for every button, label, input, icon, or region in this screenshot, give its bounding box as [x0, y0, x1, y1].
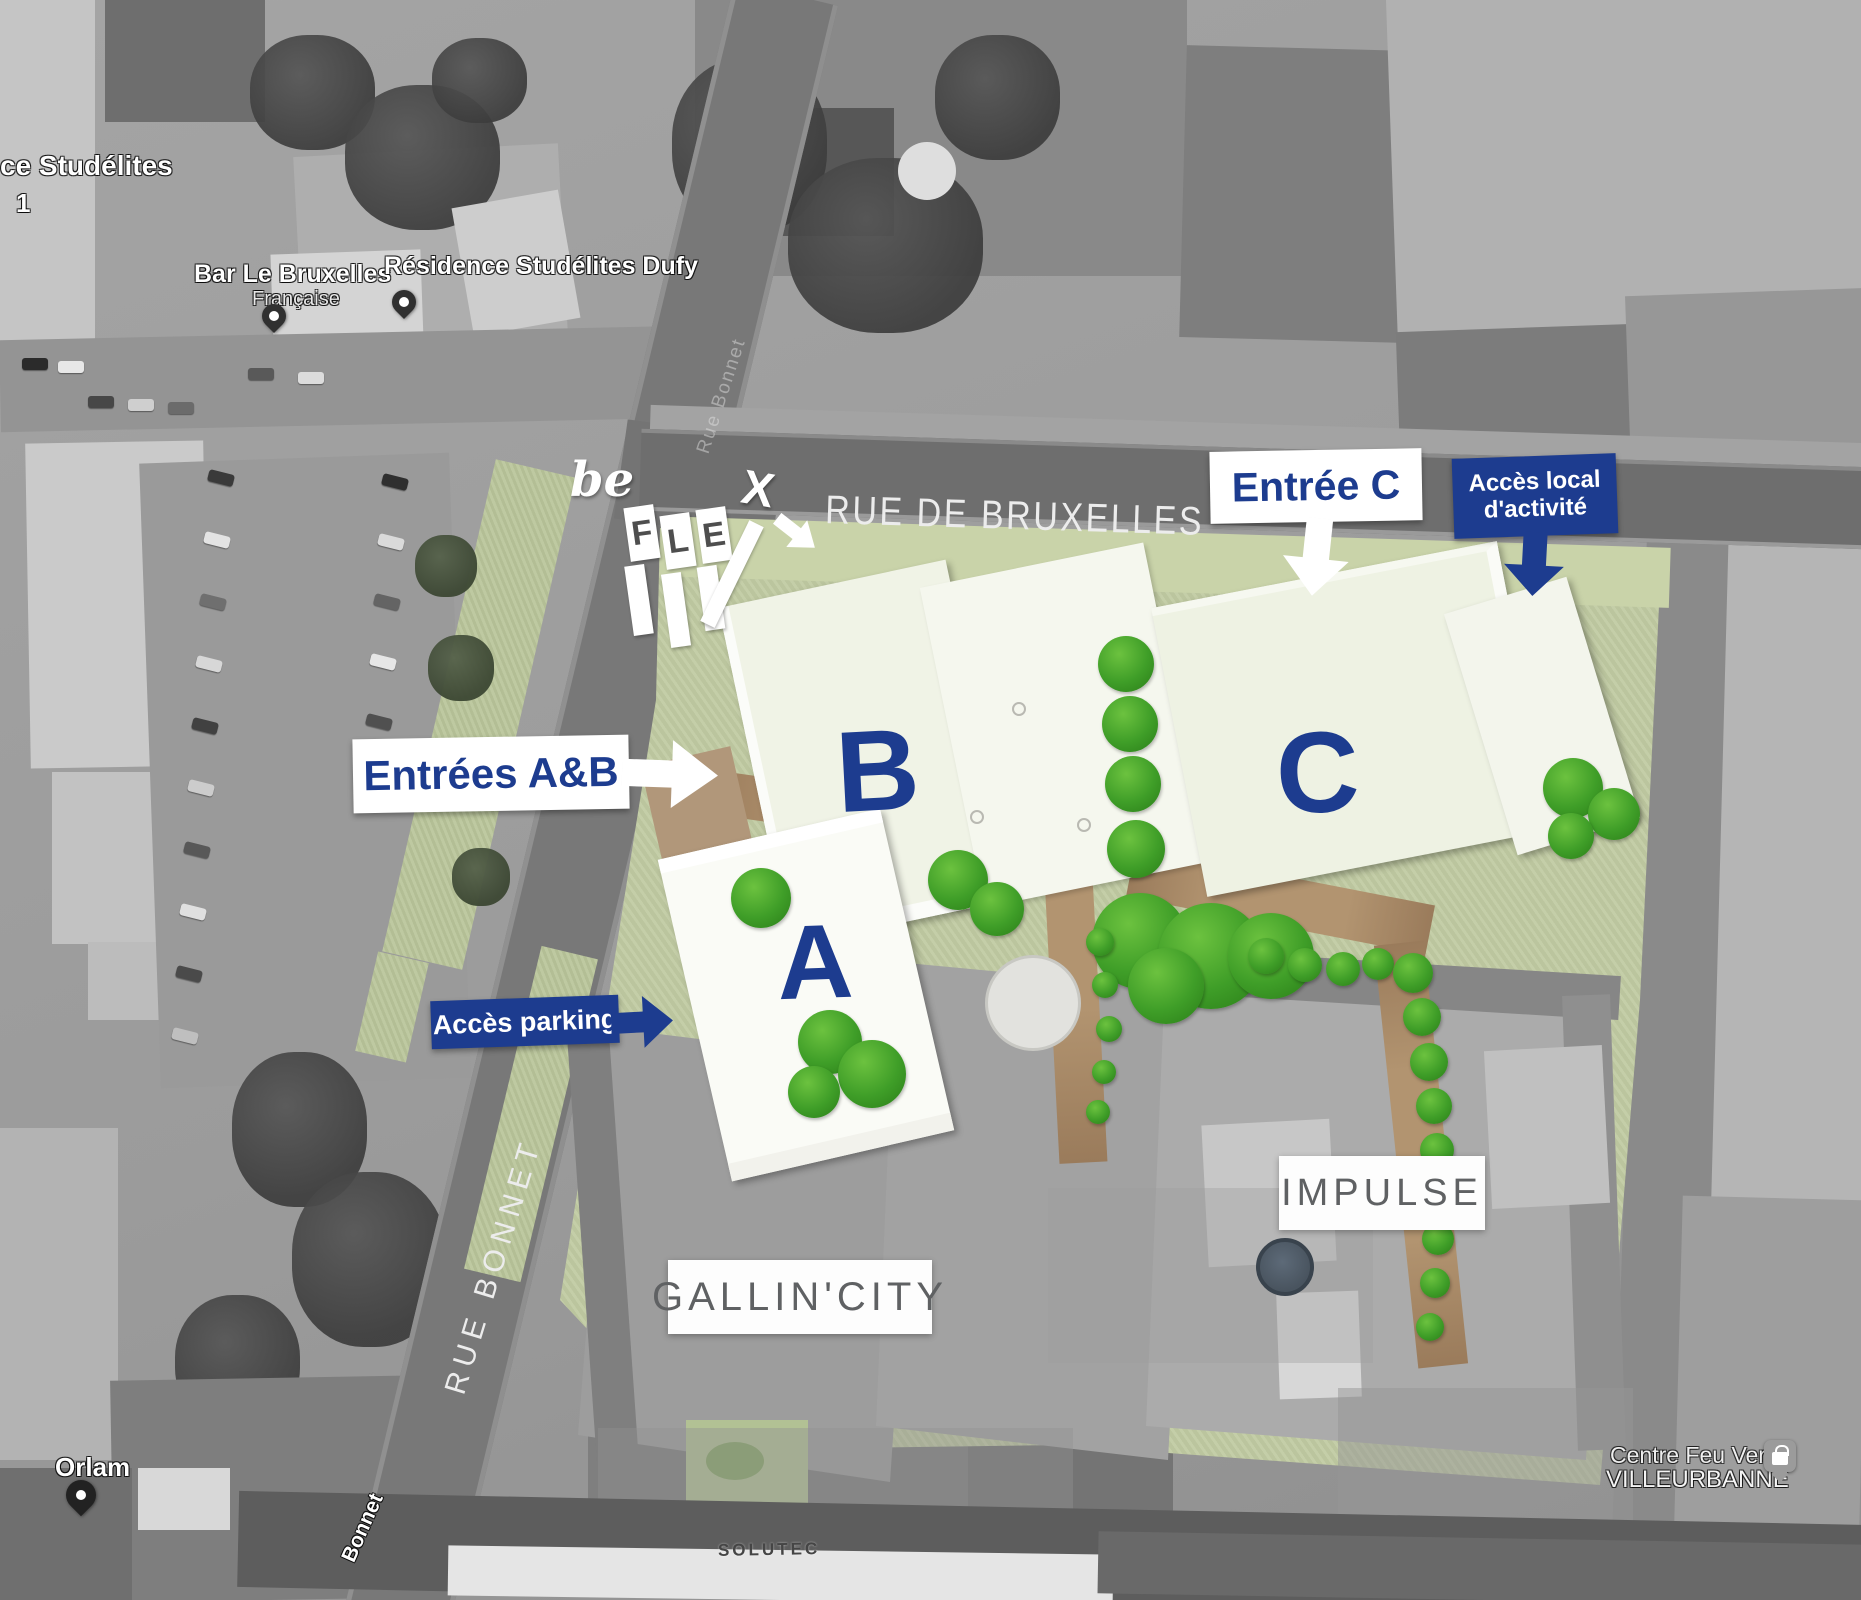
poi-orlam-label: Orlam — [55, 1452, 130, 1483]
poi-solutec-label: SOLUTEC — [718, 1539, 821, 1561]
aerial-car — [128, 399, 154, 411]
plan-plaza-circle — [985, 955, 1081, 1051]
plan-bush — [970, 882, 1024, 936]
aerial-building — [105, 0, 265, 122]
gallin-city-label: GALLIN'CITY — [652, 1275, 948, 1320]
aerial-car — [88, 396, 114, 408]
building-c-label: C — [1274, 715, 1361, 833]
plan-bush — [1588, 788, 1640, 840]
callout-acces-parking-label: Accès parking — [432, 1003, 618, 1040]
callout-acces-local-line2: d'activité — [1483, 494, 1587, 524]
poi-studelites-number: 1 — [16, 188, 30, 219]
plan-bush — [1416, 1088, 1452, 1124]
building-a-label: A — [775, 909, 854, 1017]
plan-hedge-tree — [415, 535, 477, 597]
logo-be: be — [570, 452, 634, 508]
poi-feuvert-label: Centre Feu Vert — [1610, 1442, 1772, 1469]
plan-marker-ring — [1012, 702, 1026, 716]
pin-dot-icon — [74, 1488, 88, 1502]
plan-bush — [838, 1040, 906, 1108]
aerial-building — [1673, 1196, 1861, 1566]
plan-tree-cluster — [1128, 948, 1204, 1024]
plan-bush — [788, 1066, 840, 1118]
aerial-car — [22, 358, 48, 370]
callout-acces-local: Accès local d'activité — [1452, 453, 1619, 539]
aerial-building — [138, 1468, 230, 1530]
plan-bush — [1420, 1268, 1450, 1298]
aerial-car — [58, 361, 84, 373]
aerial-car — [298, 372, 324, 384]
plan-marker-ring — [1077, 818, 1091, 832]
plan-bush — [1393, 953, 1433, 993]
aerial-building — [1179, 45, 1411, 343]
plan-bush — [1288, 948, 1322, 982]
plan-bush — [1102, 696, 1158, 752]
plan-marker-ring — [970, 810, 984, 824]
plan-bush — [1096, 1016, 1122, 1042]
aerial-street — [0, 326, 691, 432]
plan-bush — [1248, 938, 1284, 974]
area-label-gallin-city: GALLIN'CITY — [668, 1260, 932, 1334]
plan-fade — [1338, 1388, 1633, 1528]
poi-feuvert-city-label: VILLEURBANNE — [1606, 1466, 1789, 1494]
aerial-tree — [432, 38, 527, 123]
aerial-car — [248, 368, 274, 380]
aerial-round-structure — [1256, 1238, 1314, 1296]
poi-residence-label: Résidence Studélites Dufy — [384, 252, 698, 281]
impulse-label: IMPULSE — [1281, 1172, 1483, 1215]
poi-bar-label: Bar Le Bruxelles — [194, 260, 391, 289]
pin-dot-icon — [267, 309, 281, 323]
plan-bush — [1092, 972, 1118, 998]
aerial-tree — [788, 158, 983, 333]
callout-entree-c: Entrée C — [1209, 448, 1422, 524]
plan-bush — [1092, 1060, 1116, 1084]
plan-hedge-tree — [428, 635, 494, 701]
aerial-building — [0, 1468, 132, 1600]
aerial-tree — [935, 35, 1060, 160]
plan-bush — [1416, 1313, 1444, 1341]
callout-entree-c-label: Entrée C — [1231, 461, 1400, 511]
plan-bush — [1326, 952, 1360, 986]
aerial-parasol — [898, 142, 956, 200]
plan-hedge-tree — [452, 848, 510, 906]
plan-bush — [1548, 813, 1594, 859]
area-label-impulse: IMPULSE — [1279, 1156, 1485, 1230]
plan-bush — [1086, 928, 1114, 956]
callout-acces-parking: Accès parking — [430, 995, 620, 1050]
plan-bush — [1105, 756, 1161, 812]
pin-dot-icon — [397, 295, 411, 309]
aerial-car — [168, 402, 194, 414]
poi-studelites-label: ce Studélites — [0, 150, 173, 182]
plan-bush — [1098, 636, 1154, 692]
callout-entrees-ab: Entrées A&B — [352, 735, 629, 814]
aerial-building — [0, 1128, 118, 1460]
building-b-label: B — [833, 712, 922, 831]
plan-bush — [1403, 998, 1441, 1036]
plan-bush — [1410, 1043, 1448, 1081]
bag-body-icon — [1772, 1452, 1788, 1465]
plan-bush — [1362, 948, 1394, 980]
callout-entrees-ab-label: Entrées A&B — [363, 748, 619, 800]
plan-bush — [1107, 820, 1165, 878]
plan-bush — [1086, 1100, 1110, 1124]
plan-impulse-roof — [1484, 1045, 1610, 1209]
site-plan-map: B C A RUE DE BRUXELLES RUE BONNET Rue Bo… — [0, 0, 1861, 1600]
